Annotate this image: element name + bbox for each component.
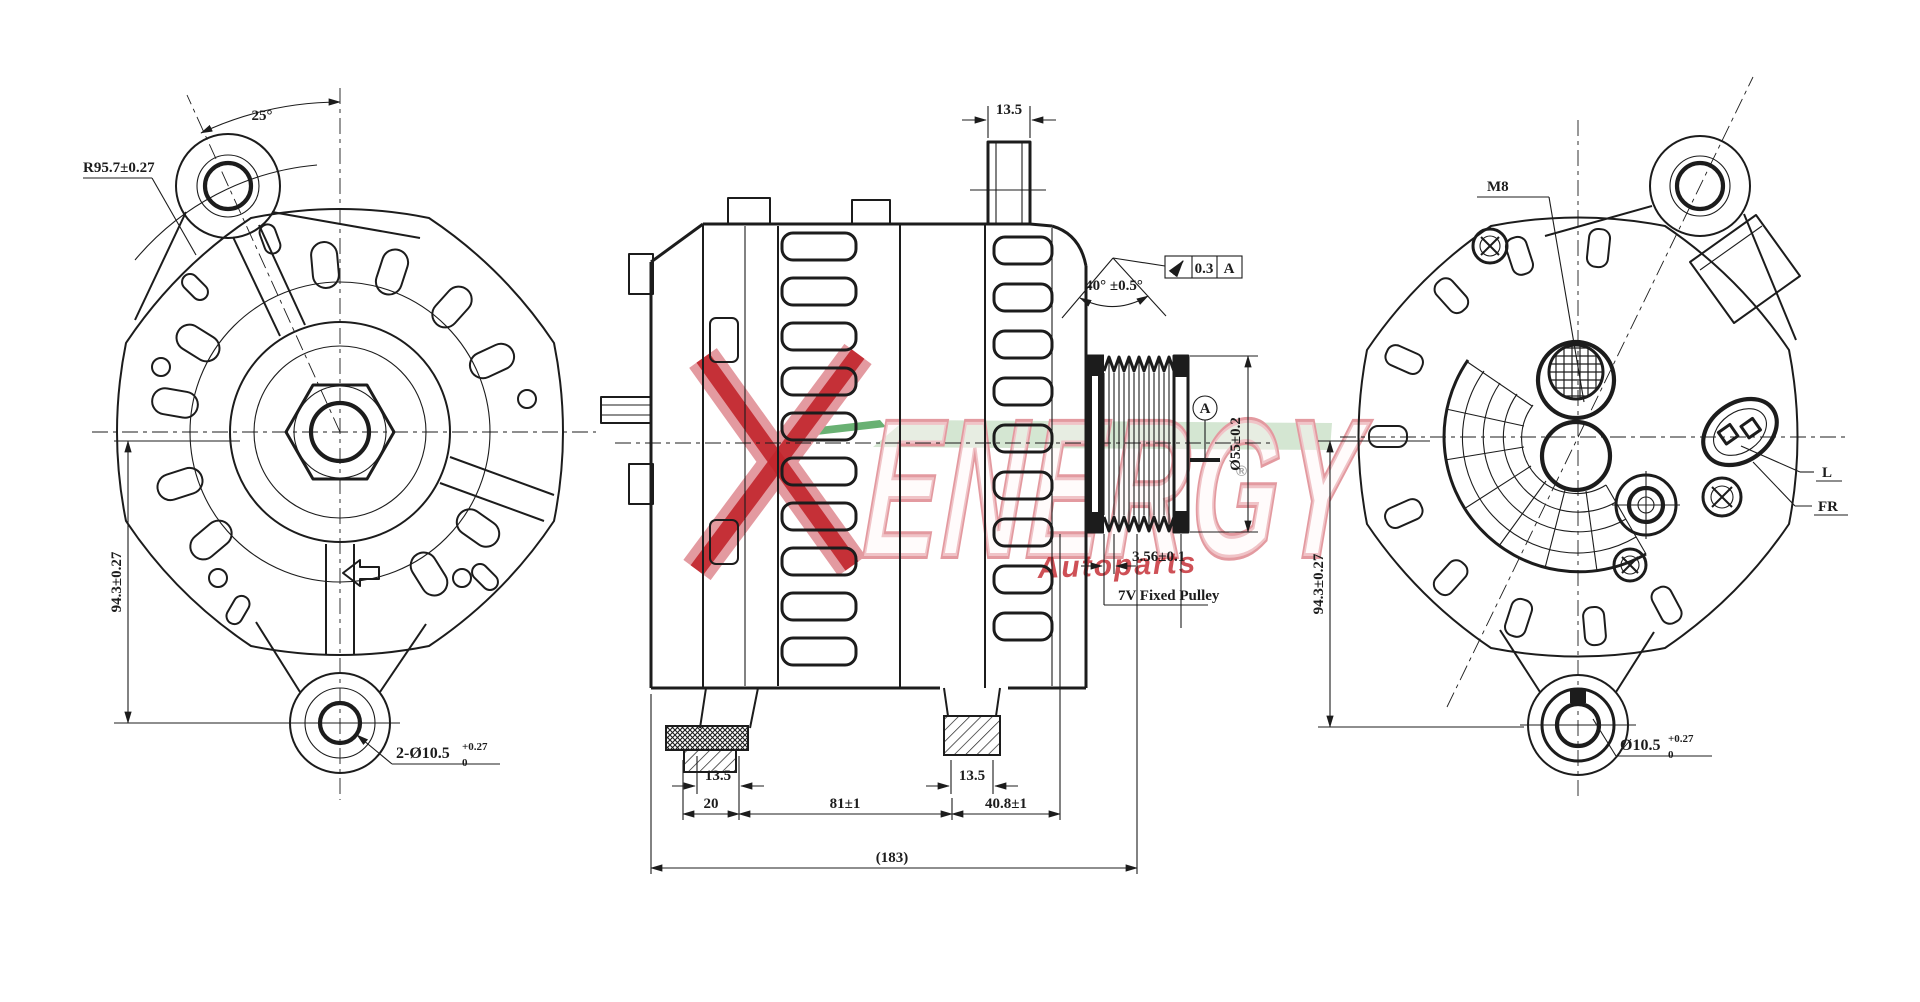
circular-runout-icon [1173,261,1183,274]
connector-pin-fr [1741,418,1760,437]
side-rear-cover [601,224,738,688]
dim-groove-pitch-label: 3.56±0.1 [1132,549,1185,565]
dim-front-height-label: 94.3±0.27 [109,551,125,612]
dim-holes-tol-minus: 0 [462,757,468,769]
fcf-datum-label: A [1224,261,1235,277]
terminal-fr-label: FR [1818,499,1838,515]
dim-foot-right-width-label: 13.5 [959,768,985,784]
dim-overall-label: (183) [876,850,909,866]
engineering-drawing-sheet: ENERGY ® Autoparts [0,0,1920,1002]
dim-rear-height-label: 94.3±0.27 [1311,553,1327,614]
dim-81-label: 81±1 [830,796,861,812]
rear-view: M8 L FR 94.3±0.27 Ø10.5 +0.27 0 [1311,77,1848,800]
phillips-screw-icon [1473,229,1507,263]
datum-a-label: A [1200,401,1211,417]
dim-m8-label: M8 [1487,179,1509,195]
side-right-foot [944,688,1000,755]
dim-holes-tol-plus: +0.27 [462,741,488,753]
brand-watermark: ENERGY ® Autoparts [697,354,1373,598]
pulley-note-label: 7V Fixed Pulley [1118,588,1220,604]
fcf-value-label: 0.3 [1195,261,1214,277]
front-ear-centerline [187,95,340,432]
connector-pin-l [1718,424,1737,443]
terminal-l-label: L [1822,465,1832,481]
dim-angle-25-label: 25° [252,108,273,124]
rear-terminal-boss [1612,471,1680,539]
dim-rear-hole-label: Ø10.5 [1620,737,1660,754]
front-top-ear [135,134,420,320]
dim-front-holes: 2-Ø10.5 +0.27 0 [357,735,500,769]
dim-front-angle: 25° [201,102,340,133]
rear-regulator [1690,215,1800,323]
dim-20-label: 20 [704,796,719,812]
dim-rear-hole-tol-minus: 0 [1668,749,1674,761]
dim-40-8-label: 40.8±1 [985,796,1027,812]
rear-center-boss [1538,342,1614,490]
dim-foot-left-width-label: 13.5 [705,768,731,784]
through-bolt [601,397,651,423]
dim-groove-angle: 40° ±0.5° [1062,258,1166,318]
phillips-screw-icon [1703,478,1741,516]
dim-pulley-dia-label: Ø55±0.2 [1228,417,1244,471]
dim-rear-hole-tol-plus: +0.27 [1668,733,1694,745]
pulley-groove-lines [1104,359,1174,529]
dim-holes-label: 2-Ø10.5 [396,745,450,762]
dim-radius-label: R95.7±0.27 [83,160,155,176]
side-left-foot [666,688,758,772]
dim-stud-width-label: 13.5 [996,102,1022,118]
dim-stud-width: 13.5 [962,102,1056,138]
front-view: 25° R95.7±0.27 94.3±0.27 2-Ø10.5 +0.27 0 [83,88,596,800]
foot-bushing-knurl [666,726,748,750]
front-spokes [233,225,554,654]
dim-front-radius: R95.7±0.27 [83,160,196,255]
feature-control-frame: 0.3 A [1165,256,1242,278]
alternator-drawing: ENERGY ® Autoparts [0,0,1920,1002]
rear-connector [1691,385,1790,478]
foot-bushing-hatch-right [944,716,1000,755]
front-vent-slots [150,222,536,627]
rear-ear-centerline [1447,77,1753,707]
terminal-stud [970,142,1046,224]
dim-groove-angle-label: 40° ±0.5° [1085,278,1143,294]
